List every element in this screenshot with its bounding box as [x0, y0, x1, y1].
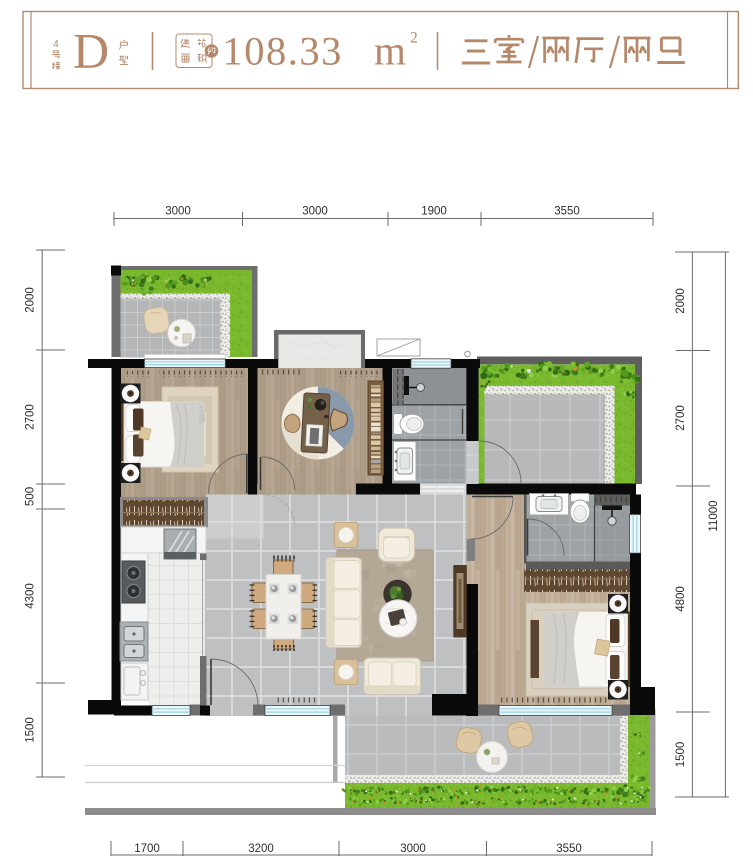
svg-text:3000: 3000: [165, 206, 191, 218]
svg-text:3200: 3200: [248, 843, 274, 855]
svg-text:1500: 1500: [675, 742, 687, 768]
svg-text:3550: 3550: [556, 843, 582, 855]
svg-text:4300: 4300: [25, 583, 37, 609]
svg-text:2: 2: [410, 30, 418, 47]
svg-text:m: m: [374, 28, 406, 74]
svg-text:4: 4: [53, 39, 59, 50]
svg-text:3550: 3550: [554, 206, 580, 218]
svg-text:1500: 1500: [25, 717, 37, 743]
svg-text:3000: 3000: [302, 206, 328, 218]
svg-text:3000: 3000: [400, 843, 426, 855]
svg-text:2000: 2000: [675, 288, 687, 314]
svg-text:2700: 2700: [675, 405, 687, 431]
svg-text:1700: 1700: [134, 843, 160, 855]
svg-text:2700: 2700: [25, 404, 37, 430]
svg-text:11000: 11000: [708, 500, 720, 531]
svg-text:4800: 4800: [675, 586, 687, 612]
svg-text:108.33: 108.33: [223, 29, 343, 74]
svg-text:2000: 2000: [25, 287, 37, 313]
svg-text:1900: 1900: [421, 206, 447, 218]
svg-text:500: 500: [25, 487, 37, 506]
svg-text:D: D: [73, 23, 109, 79]
